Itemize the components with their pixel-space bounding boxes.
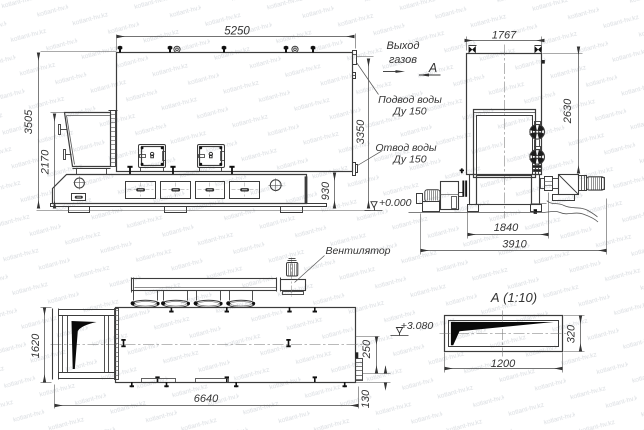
svg-text:930: 930 — [320, 181, 332, 200]
svg-text:3350: 3350 — [355, 119, 367, 144]
svg-text:Ду 150: Ду 150 — [392, 106, 426, 118]
svg-text:1767: 1767 — [492, 30, 517, 42]
svg-text:1840: 1840 — [494, 222, 519, 234]
svg-text:1620: 1620 — [30, 333, 42, 358]
svg-text:320: 320 — [566, 324, 578, 343]
svg-text:3505: 3505 — [23, 109, 35, 134]
svg-text:Выход: Выход — [386, 40, 419, 52]
svg-text:5250: 5250 — [224, 26, 250, 38]
svg-text:Ду 150: Ду 150 — [392, 154, 426, 166]
svg-text:+3.080: +3.080 — [401, 320, 434, 332]
svg-text:2630: 2630 — [562, 98, 574, 124]
svg-text:1200: 1200 — [491, 358, 516, 370]
svg-text:Подвод воды: Подвод воды — [378, 94, 442, 106]
svg-text:A: A — [428, 61, 437, 75]
svg-text:250: 250 — [361, 339, 373, 359]
svg-text:А (1:10): А (1:10) — [490, 290, 537, 305]
svg-text:+0.000: +0.000 — [379, 197, 412, 209]
svg-text:130: 130 — [360, 389, 372, 408]
svg-text:Вентилятор: Вентилятор — [325, 245, 390, 257]
svg-text:Отвод воды: Отвод воды — [375, 142, 437, 154]
svg-text:6640: 6640 — [194, 393, 219, 405]
svg-text:3910: 3910 — [502, 239, 527, 251]
svg-text:2170: 2170 — [40, 149, 52, 175]
svg-text:газов: газов — [389, 54, 417, 66]
